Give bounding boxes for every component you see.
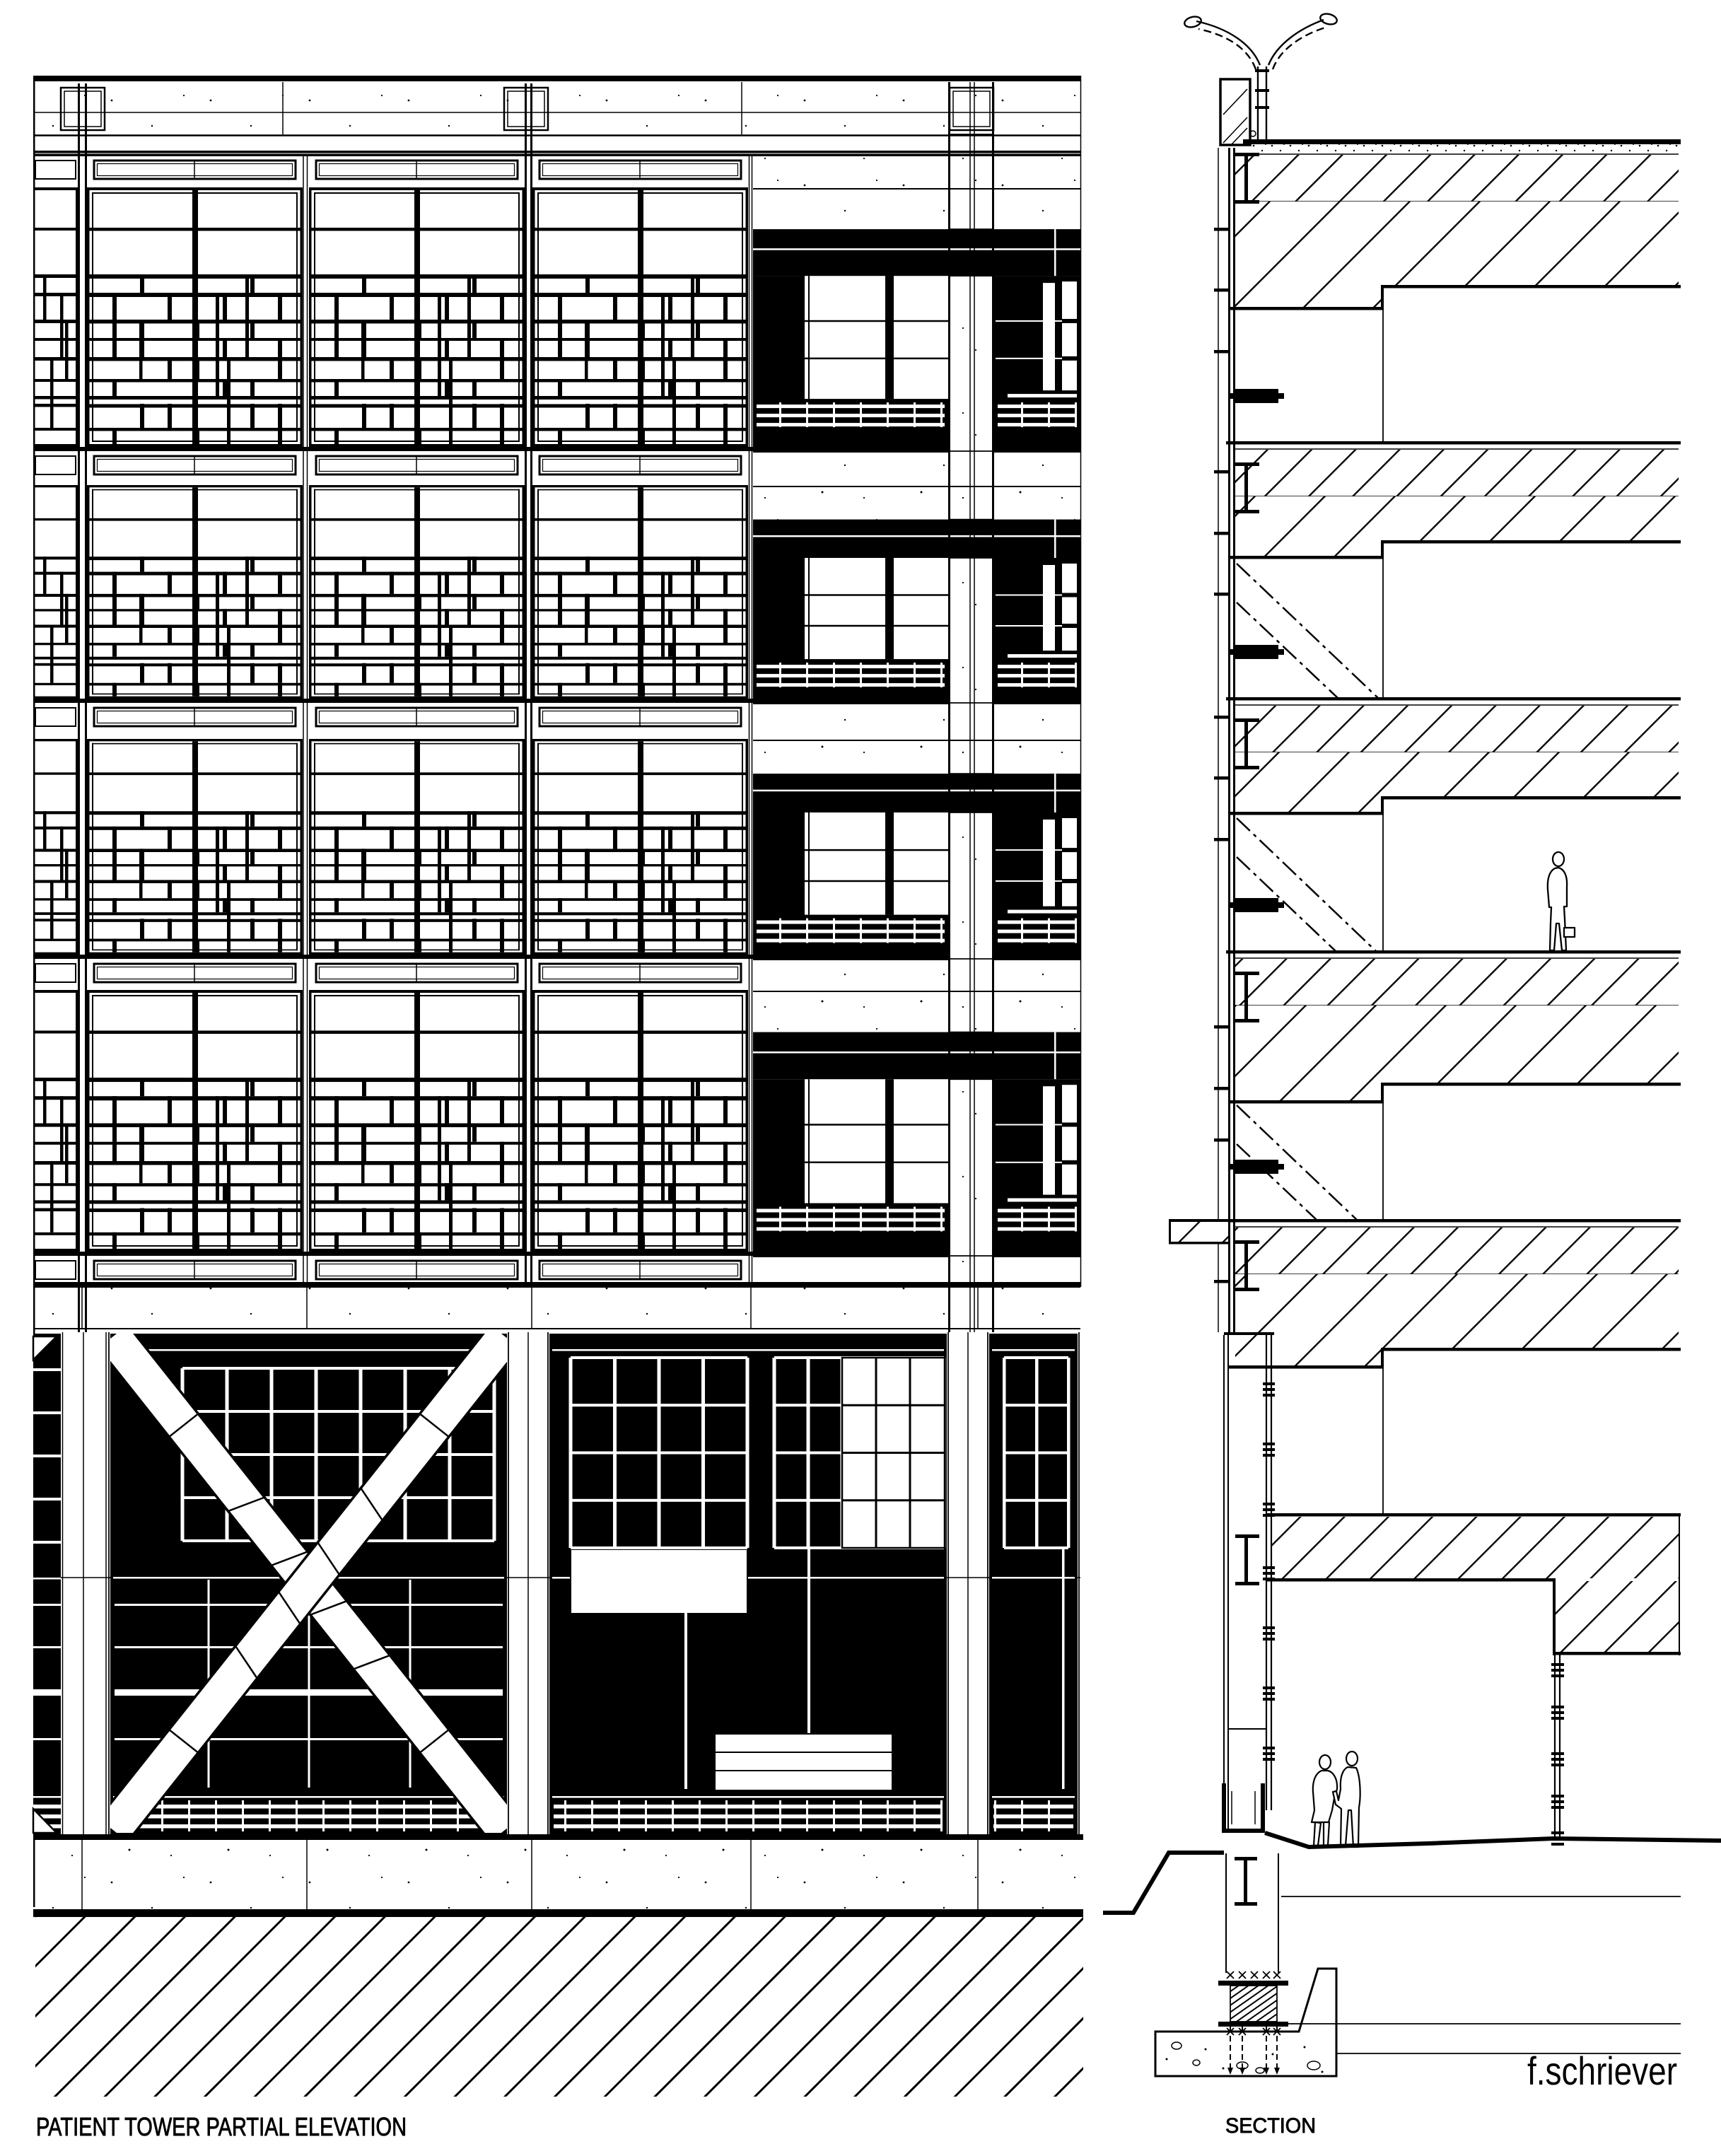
svg-text:f.schriever: f.schriever bbox=[1527, 2049, 1677, 2093]
svg-text:PATIENT TOWER PARTIAL ELEVATIO: PATIENT TOWER PARTIAL ELEVATION bbox=[36, 2112, 407, 2141]
svg-text:SECTION: SECTION bbox=[1225, 2114, 1316, 2138]
